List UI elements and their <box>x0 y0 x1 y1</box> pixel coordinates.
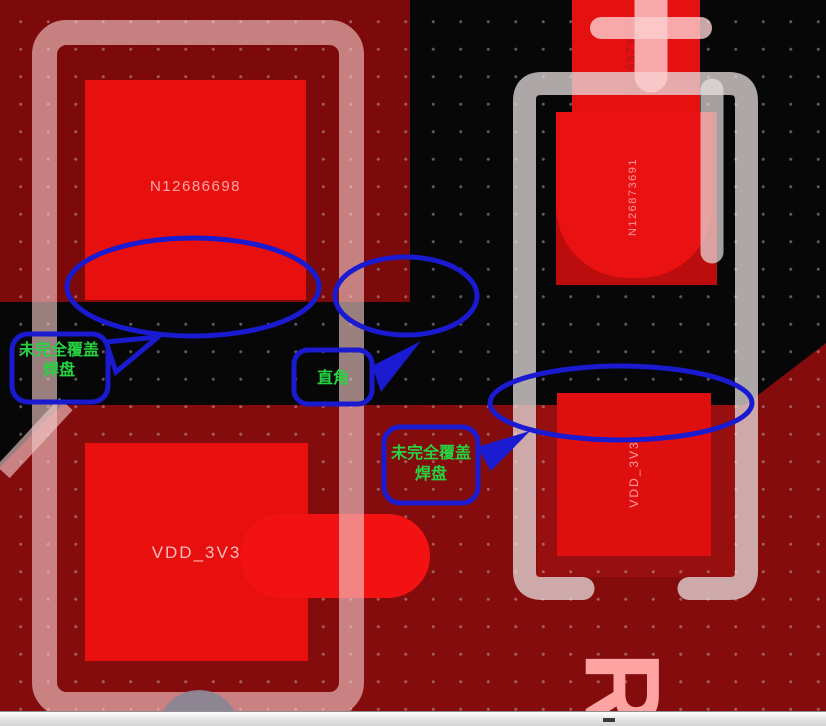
ellipse-annotation-left[interactable] <box>67 238 319 336</box>
callout-text-right-line1: 未完全覆盖 <box>384 443 478 464</box>
pcb-editor-viewport: N12686698 VDD_3V3 N126873691 N126873691 … <box>0 0 826 726</box>
callout-text-left: 未完全覆盖 焊盘 <box>10 341 108 381</box>
callout-tail-left <box>106 337 158 372</box>
callout-text-left-line1: 未完全覆盖 <box>10 341 108 361</box>
callout-tail-right <box>477 431 530 471</box>
callout-tail-middle <box>372 341 421 392</box>
callout-text-right-line2: 焊盘 <box>384 464 478 485</box>
ellipse-annotation-right[interactable] <box>490 366 752 440</box>
callout-text-left-line2: 焊盘 <box>10 361 108 381</box>
annotation-layer <box>0 0 826 726</box>
ellipse-annotation-middle[interactable] <box>335 257 477 335</box>
callout-text-right: 未完全覆盖 焊盘 <box>384 443 478 485</box>
scrollbar-tick <box>603 718 615 722</box>
callout-text-middle: 直角 <box>294 369 372 389</box>
horizontal-scrollbar[interactable] <box>0 711 826 726</box>
